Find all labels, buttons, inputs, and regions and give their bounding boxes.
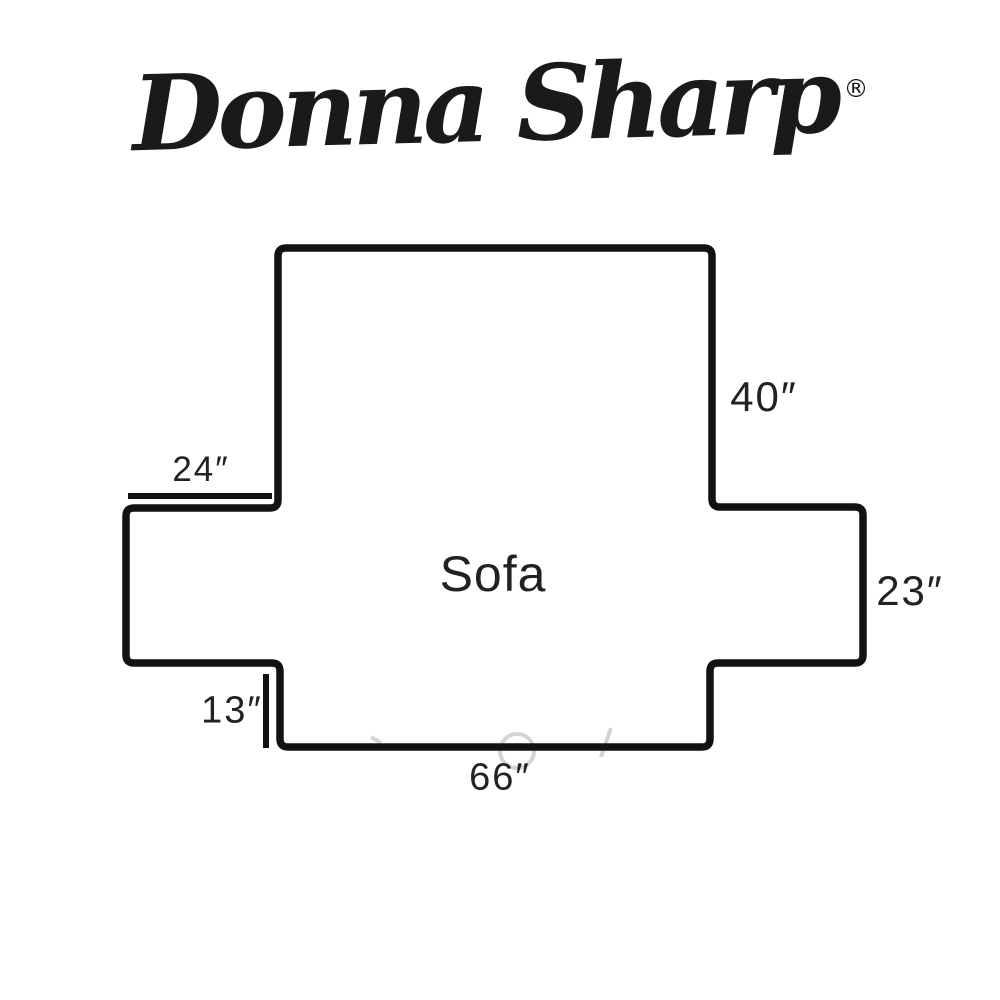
diagram-canvas xyxy=(0,0,1000,1000)
dimension-label-base-width: 66″ xyxy=(469,757,531,800)
dimension-label-skirt-drop: 13″ xyxy=(201,690,263,733)
product-label: Sofa xyxy=(440,545,547,603)
sofa-dimension-diagram: 24″ 40″ 23″ 13″ 66″ Sofa xyxy=(0,0,1000,1000)
dimension-label-seat-top-left: 24″ xyxy=(172,450,229,490)
dimension-label-back-height: 40″ xyxy=(730,373,798,421)
page: Donna Sharp ® 24″ 40″ 23″ 13″ 66″ Sofa xyxy=(0,0,1000,1000)
dimension-label-side-height: 23″ xyxy=(876,567,944,615)
